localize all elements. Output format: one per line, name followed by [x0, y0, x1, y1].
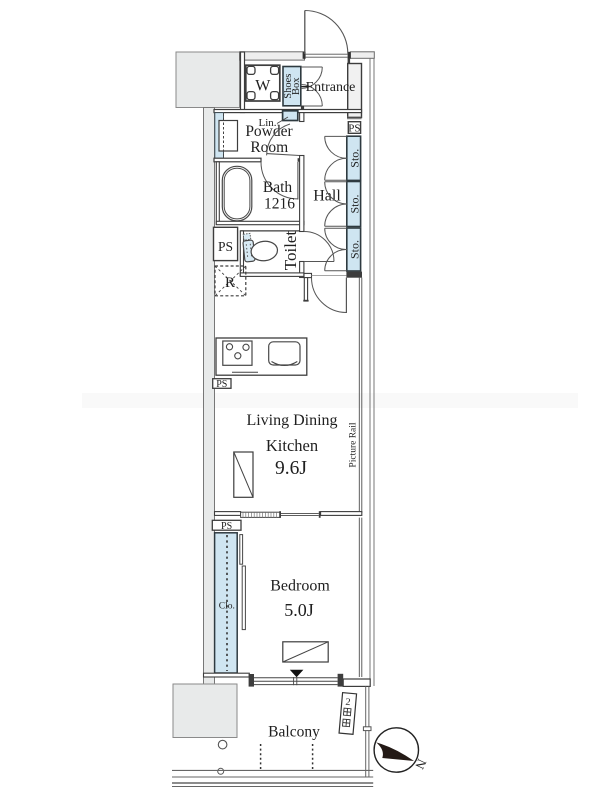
svg-text:Clo.: Clo.: [219, 602, 235, 612]
svg-text:Balcony: Balcony: [268, 724, 320, 741]
svg-text:PS: PS: [221, 521, 232, 532]
svg-text:PS: PS: [216, 379, 227, 390]
svg-text:Kitchen: Kitchen: [266, 436, 318, 455]
svg-text:9.6J: 9.6J: [275, 458, 307, 479]
svg-text:1216: 1216: [264, 196, 295, 213]
svg-text:5.0J: 5.0J: [284, 600, 314, 620]
svg-text:Picture Rail: Picture Rail: [349, 422, 359, 467]
svg-text:Sto.: Sto.: [347, 149, 361, 168]
svg-text:W: W: [255, 78, 271, 95]
svg-text:Box: Box: [291, 77, 302, 95]
svg-text:2: 2: [345, 697, 351, 708]
svg-text:PS: PS: [348, 122, 360, 134]
svg-text:Sto.: Sto.: [347, 194, 361, 213]
svg-text:PS: PS: [218, 239, 233, 254]
svg-text:Bedroom: Bedroom: [270, 578, 330, 595]
svg-text:Living Dining: Living Dining: [246, 412, 337, 429]
svg-text:R: R: [225, 275, 235, 291]
svg-text:Sto.: Sto.: [347, 240, 361, 259]
svg-text:Entrance: Entrance: [306, 80, 356, 95]
svg-text:Toilet: Toilet: [281, 231, 300, 271]
svg-text:Bath: Bath: [263, 179, 293, 196]
